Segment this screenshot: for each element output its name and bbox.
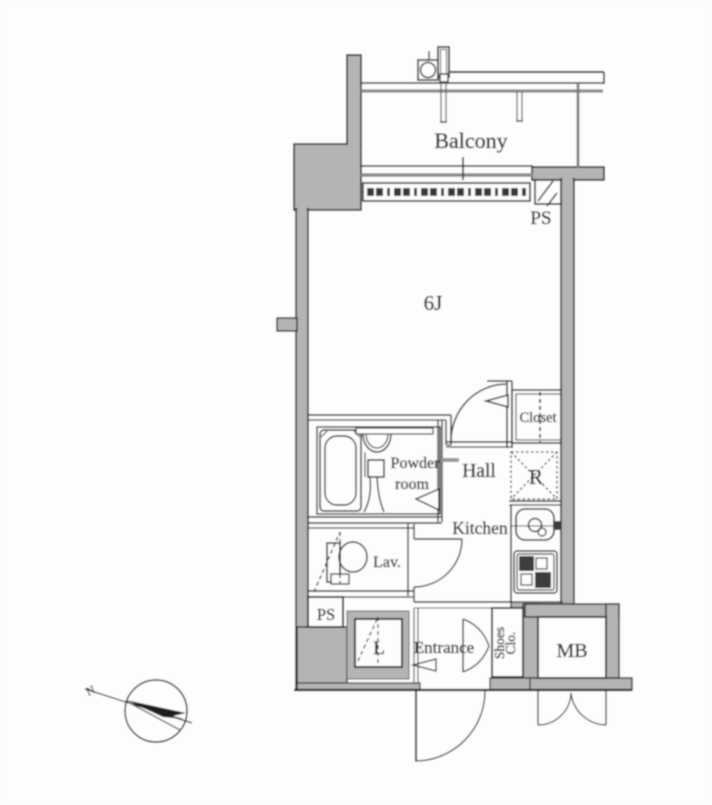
svg-text:Hall: Hall bbox=[462, 461, 496, 482]
svg-text:L: L bbox=[373, 638, 385, 659]
svg-text:Powder: Powder bbox=[391, 455, 441, 472]
svg-text:PS: PS bbox=[530, 208, 551, 229]
svg-text:6J: 6J bbox=[424, 291, 443, 315]
svg-text:room: room bbox=[395, 476, 429, 493]
svg-text:Clo.: Clo. bbox=[503, 632, 518, 655]
svg-text:MB: MB bbox=[556, 640, 587, 662]
svg-text:Closet: Closet bbox=[519, 410, 556, 426]
svg-text:Lav.: Lav. bbox=[373, 554, 401, 571]
svg-text:Kitchen: Kitchen bbox=[452, 518, 508, 538]
svg-text:Entrance: Entrance bbox=[414, 638, 474, 657]
svg-text:Balcony: Balcony bbox=[434, 128, 507, 153]
svg-text:R: R bbox=[529, 465, 543, 489]
svg-text:PS: PS bbox=[317, 605, 335, 624]
